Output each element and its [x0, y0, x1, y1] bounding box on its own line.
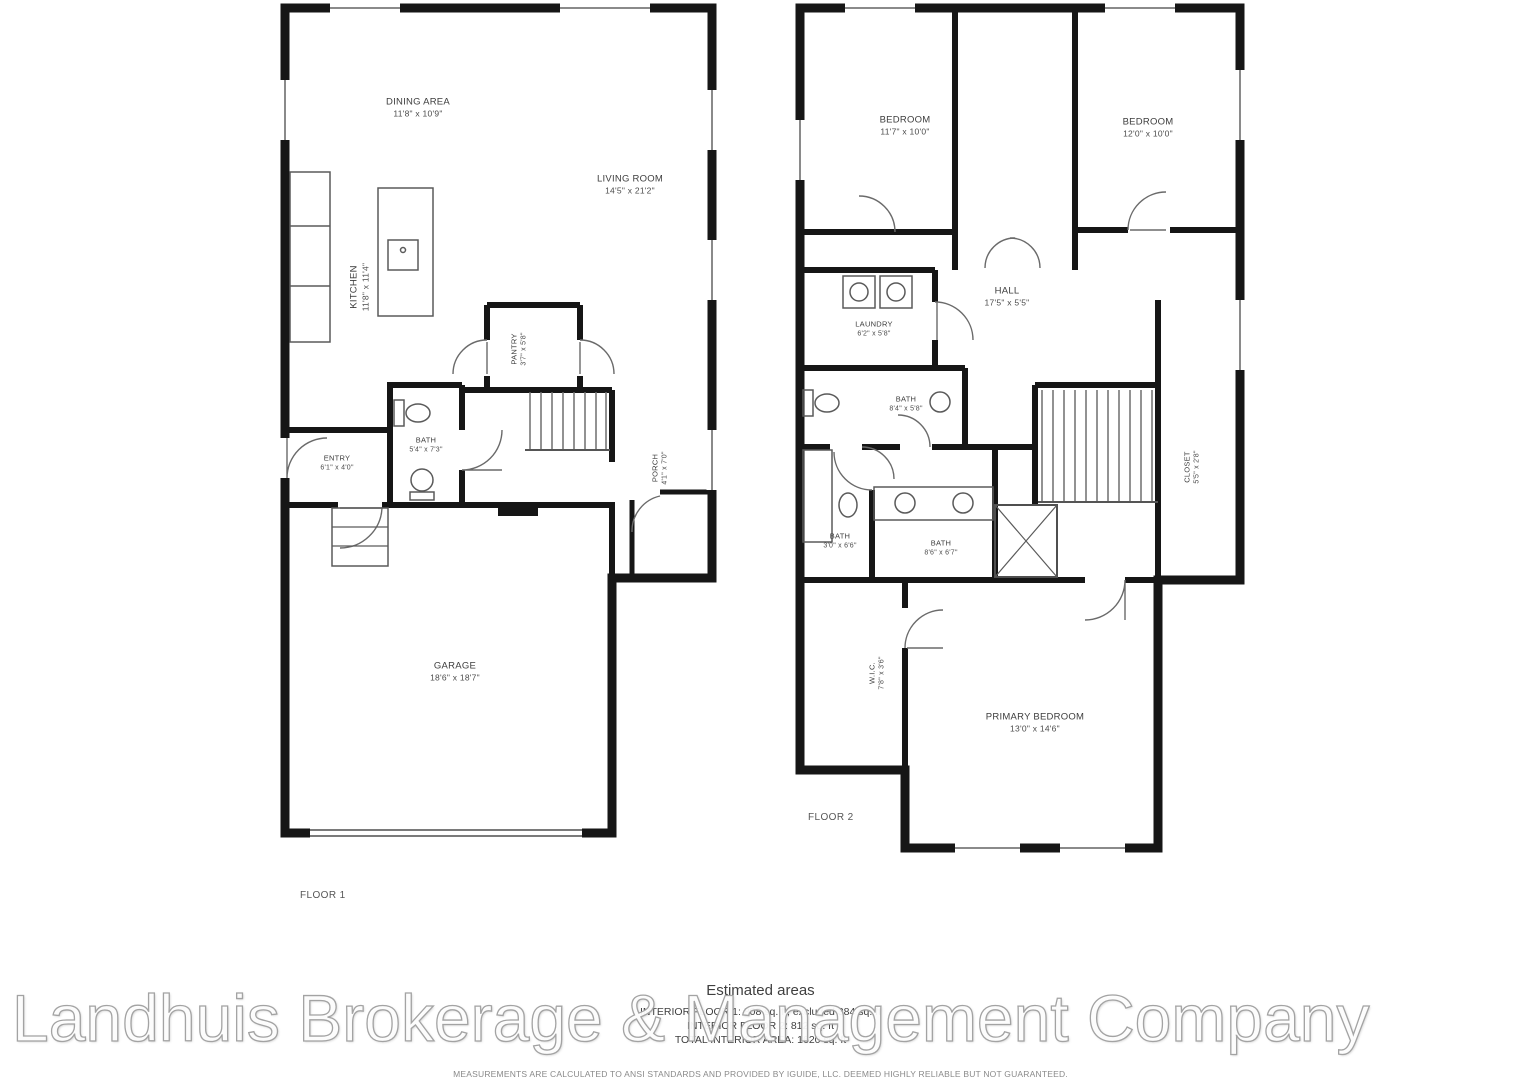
room-label-laundry: LAUNDRY 6'2" x 5'8": [855, 320, 892, 339]
floor2-tag: FLOOR 2: [808, 812, 854, 823]
floor1-windows: [285, 8, 712, 490]
room-label-bath-floor1: BATH 5'4" x 7'3": [409, 436, 442, 455]
kitchen-counter: [290, 172, 330, 342]
room-label-hall: HALL 17'5" x 5'5": [985, 285, 1030, 308]
floor1-doors: [285, 340, 660, 548]
room-label-bath-primary: BATH 8'6" x 6'7": [924, 539, 957, 558]
room-label-kitchen: KITCHEN 11'8" x 11'4": [348, 263, 371, 312]
floorplan-page: DINING AREA 11'8" x 10'9" LIVING ROOM 14…: [0, 0, 1521, 1080]
room-label-pantry: PANTRY 3'7" x 5'8": [510, 332, 529, 365]
floor2-stairs: [1038, 390, 1158, 502]
room-label-closet-right: CLOSET 5'5" x 2'8": [1183, 450, 1202, 483]
floorplan-canvas: [0, 0, 1521, 1080]
floor1-plan: [285, 8, 712, 833]
floor1-tag: FLOOR 1: [300, 890, 346, 901]
room-label-porch: PORCH 4'1" x 7'0": [651, 451, 670, 484]
room-label-entry: ENTRY 6'1" x 4'0": [320, 454, 353, 473]
room-label-living-room: LIVING ROOM 14'5" x 21'2": [597, 173, 663, 196]
room-label-bath-small: BATH 3'0" x 6'6": [823, 532, 856, 551]
room-label-garage: GARAGE 18'6" x 18'7": [430, 660, 480, 683]
room-label-bedroom-right: BEDROOM 12'0" x 10'0": [1123, 116, 1174, 139]
watermark: Landhuis Brokerage & Management Company: [12, 980, 1369, 1056]
room-label-bath-hall: BATH 8'4" x 5'8": [889, 395, 922, 414]
room-label-bedroom-left: BEDROOM 11'7" x 10'0": [880, 114, 931, 137]
kitchen-island: [378, 188, 433, 316]
disclaimer-text: MEASUREMENTS ARE CALCULATED TO ANSI STAN…: [0, 1069, 1521, 1079]
room-label-primary-bedroom: PRIMARY BEDROOM 13'0" x 14'6": [986, 711, 1084, 734]
room-label-wic: W.I.C. 7'8" x 3'6": [868, 656, 887, 689]
floor1-stairs: [525, 392, 610, 450]
room-label-dining-area: DINING AREA 11'8" x 10'9": [386, 96, 450, 119]
